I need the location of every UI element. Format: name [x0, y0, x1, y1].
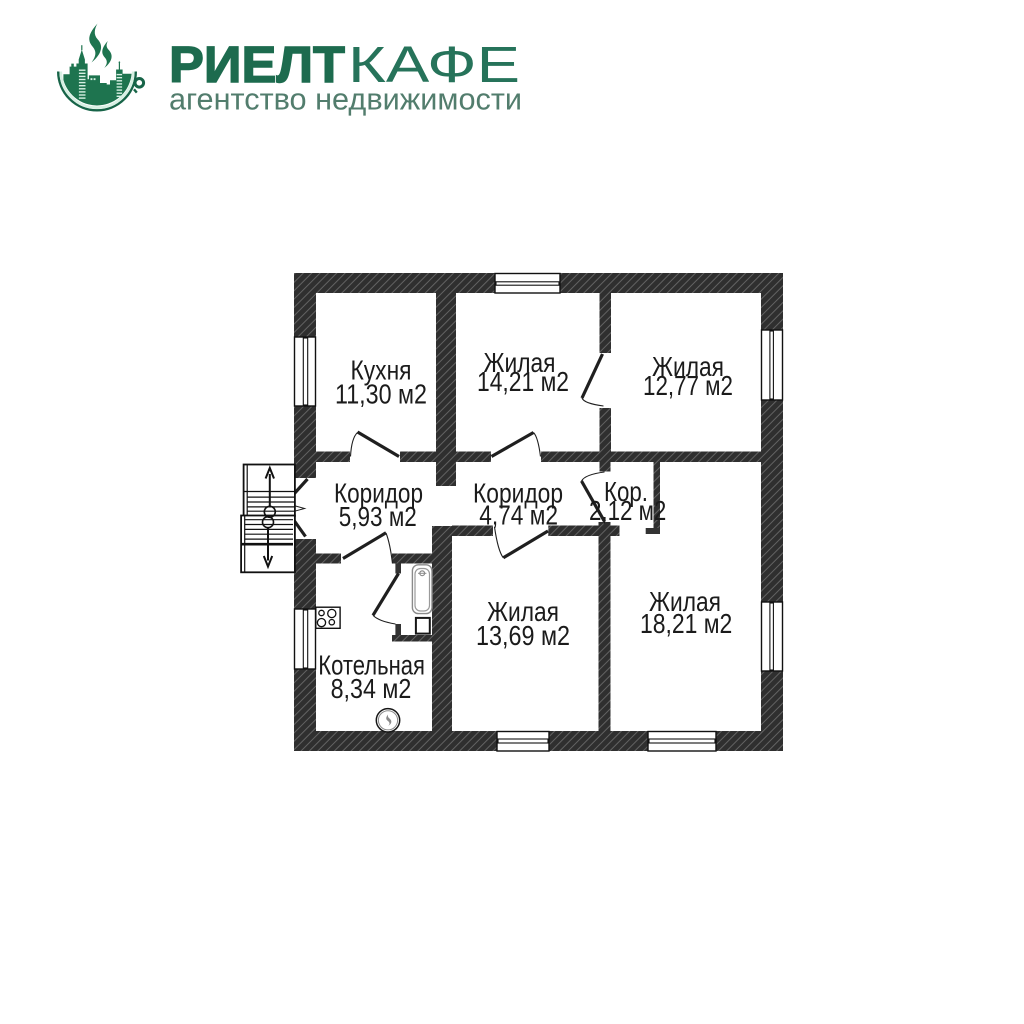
svg-text:12,77 м2: 12,77 м2: [643, 370, 733, 401]
svg-text:2,12 м2: 2,12 м2: [589, 495, 666, 526]
svg-text:14,21 м2: 14,21 м2: [477, 366, 569, 397]
svg-text:4,74 м2: 4,74 м2: [479, 500, 558, 531]
svg-text:13,69 м2: 13,69 м2: [476, 620, 570, 651]
svg-text:5,93 м2: 5,93 м2: [339, 501, 417, 532]
svg-text:11,30 м2: 11,30 м2: [335, 378, 427, 409]
svg-text:агентство недвижимости: агентство недвижимости: [169, 82, 522, 117]
svg-text:18,21 м2: 18,21 м2: [640, 608, 732, 639]
svg-text:8,34 м2: 8,34 м2: [331, 673, 412, 704]
